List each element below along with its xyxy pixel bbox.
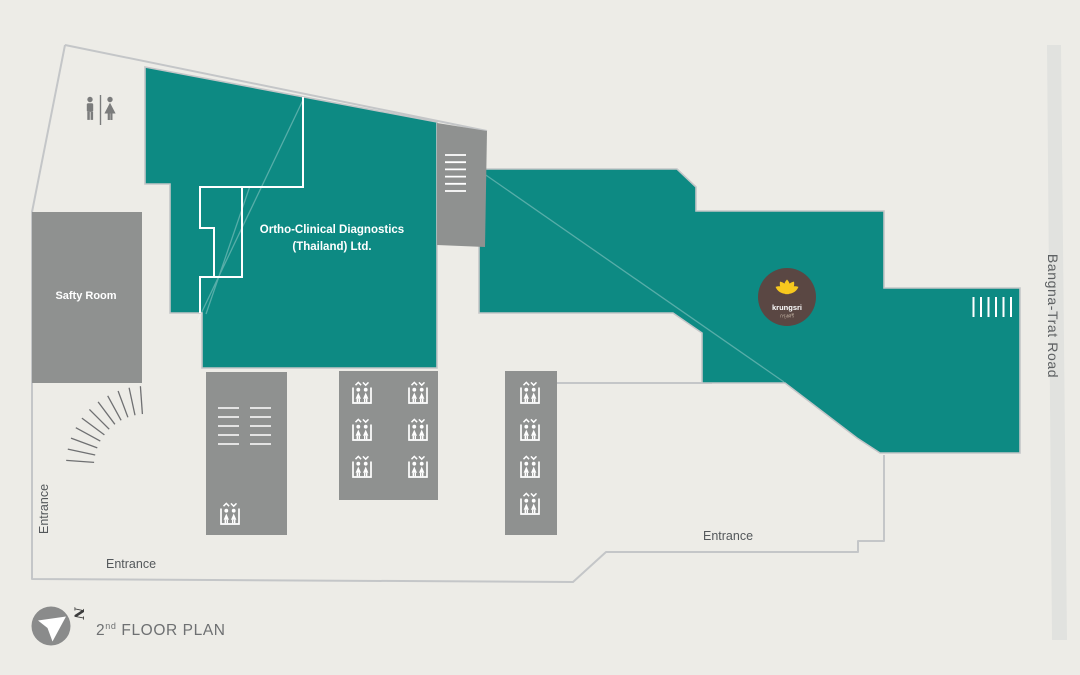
elevator-bank-middle (339, 371, 438, 500)
restroom-icon (87, 95, 116, 125)
safety-room-label: Safty Room (55, 290, 116, 302)
tenant-label-line1: Ortho-Clinical Diagnostics (260, 222, 404, 239)
north-compass-icon (32, 607, 71, 646)
logo-brand-text: krungsri (772, 303, 802, 312)
title-number: 2 (96, 622, 105, 639)
floor-plan-canvas: krungsri กรุงศรี (0, 0, 1080, 675)
logo-brand-thai: กรุงศรี (780, 313, 794, 320)
entrance-label-bottom: Entrance (106, 557, 156, 571)
page-title: 2nd FLOOR PLAN (96, 621, 226, 640)
krungsri-logo: krungsri กรุงศรี (758, 268, 816, 326)
tenant-area-right (479, 169, 1020, 453)
title-ordinal: nd (105, 621, 116, 631)
road-label: Bangna-Trat Road (1045, 254, 1061, 378)
elevator-bank-right (505, 371, 557, 535)
entrance-label-right: Entrance (703, 529, 753, 543)
service-core-left (206, 372, 287, 535)
title-text: FLOOR PLAN (121, 622, 225, 639)
floor-plan: krungsri กรุงศรี Safty Room Ortho-Clinic… (0, 0, 1080, 675)
tenant-label-line2: (Thailand) Ltd. (260, 239, 404, 256)
entrance-stair-fan (66, 386, 142, 462)
tenant-label: Ortho-Clinical Diagnostics (Thailand) Lt… (260, 222, 404, 256)
stairwell-top (437, 123, 487, 247)
woman-icon (104, 97, 115, 120)
entrance-label-left: Entrance (37, 484, 51, 534)
man-icon (87, 97, 93, 120)
compass-north-letter: N (70, 608, 85, 620)
